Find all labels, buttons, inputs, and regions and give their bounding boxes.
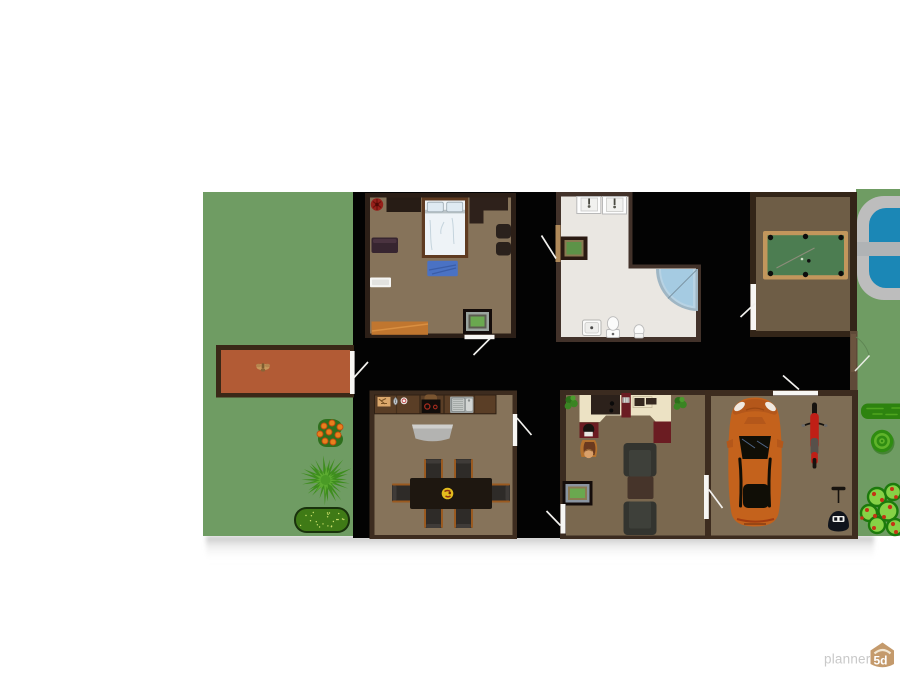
svg-text:planner: planner xyxy=(824,652,871,667)
svg-text:5d: 5d xyxy=(874,654,888,668)
